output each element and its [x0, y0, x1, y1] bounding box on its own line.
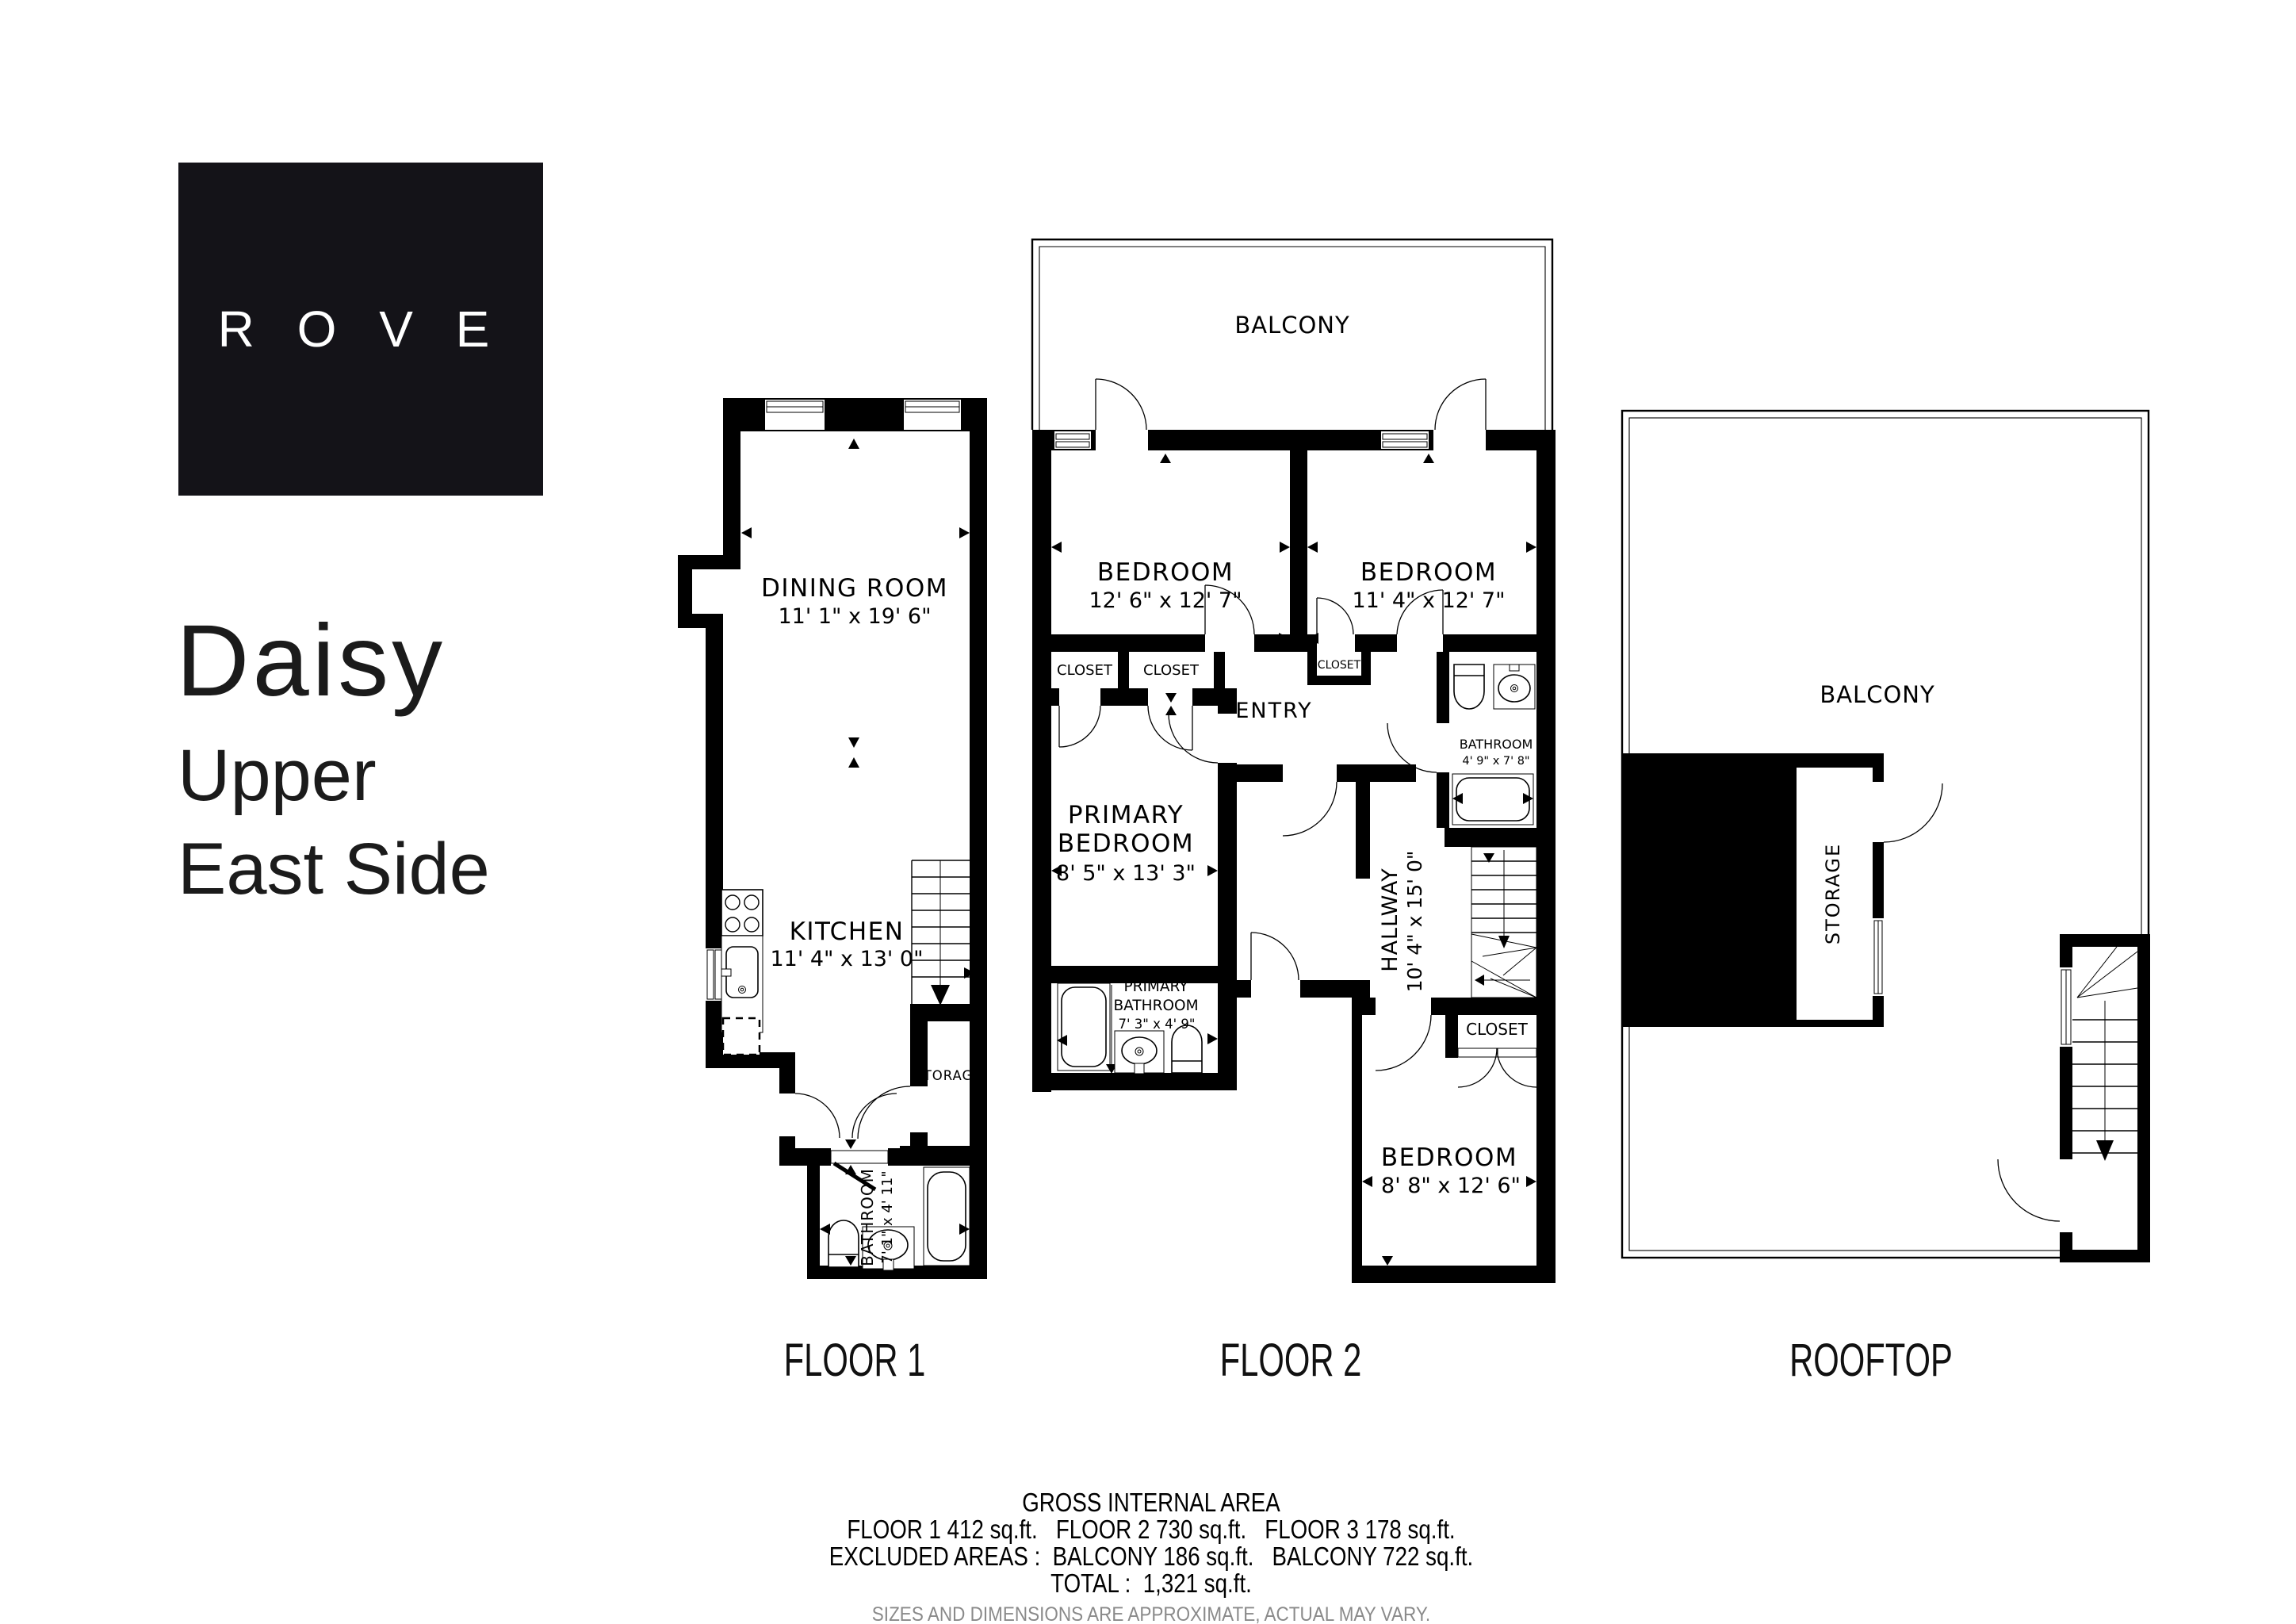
rove-logo: R O V E	[178, 163, 543, 496]
bedroom-bottom-dims: 8' 8" x 12' 6"	[1381, 1174, 1521, 1198]
primary-bathroom-label2: BATHROOM	[1113, 998, 1198, 1014]
bathroom1-dims: 7' 1" x 4' 11"	[879, 1170, 896, 1263]
rooftop-caption: ROOFTOP	[1757, 1334, 1985, 1387]
primary-bedroom-label2: BEDROOM	[1058, 829, 1194, 858]
dining-room-label: DINING ROOM	[761, 574, 948, 603]
primary-bedroom-label1: PRIMARY	[1068, 801, 1184, 829]
entry-label: ENTRY	[1235, 699, 1312, 723]
floorplan-page: R O V E Daisy Upper East Side	[0, 0, 2296, 1624]
storage-label: STORAGE	[914, 1068, 982, 1083]
floor1-caption: FLOOR 1	[740, 1334, 969, 1387]
bedroom-right-label: BEDROOM	[1360, 558, 1497, 587]
primary-bathroom-dims: 7' 3" x 4' 9"	[1119, 1017, 1196, 1032]
floor-areas-line: FLOOR 1 412 sq.ft. FLOOR 2 730 sq.ft. FL…	[618, 1516, 1684, 1543]
listing-location-line1: Upper	[178, 730, 490, 823]
listing-location-line2: East Side	[178, 823, 490, 917]
primary-bedroom-dims: 8' 5" x 13' 3"	[1056, 861, 1196, 886]
closet3-label: CLOSET	[1318, 659, 1361, 672]
primary-bathroom-label1: PRIMARY	[1123, 979, 1188, 995]
kitchen-label: KITCHEN	[790, 917, 905, 946]
listing-title: Daisy	[176, 603, 446, 719]
dishwasher-icon	[723, 1018, 760, 1055]
bathroom2-dims: 4' 9" x 7' 8"	[1462, 755, 1529, 768]
floor2-balcony-label: BALCONY	[1234, 312, 1349, 339]
floor1-plan: DINING ROOM 11' 1" x 19' 6" KITCHEN 11' …	[674, 389, 999, 1324]
rooftop-storage-block	[1622, 753, 1942, 1027]
kitchen-dims: 11' 4" x 13' 0"	[770, 947, 923, 971]
excluded-areas-line: EXCLUDED AREAS : BALCONY 186 sq.ft. BALC…	[618, 1543, 1684, 1570]
dining-room-dims: 11' 1" x 19' 6"	[778, 604, 931, 629]
floor1-walls	[678, 398, 987, 1279]
floor2-plan: BALCONY BEDROOM 12' 6" x 12' 7" BEDROOM …	[1023, 230, 1570, 1324]
bathroom2-label: BATHROOM	[1460, 737, 1533, 752]
bedroom-right-dims: 11' 4" x 12' 7"	[1352, 588, 1505, 613]
floor1-dimension-arrows	[741, 439, 970, 1266]
total-area-line: TOTAL : 1,321 sq.ft.	[618, 1570, 1684, 1597]
closet1-label: CLOSET	[1057, 662, 1113, 679]
disclaimer-text: SIZES AND DIMENSIONS ARE APPROXIMATE, AC…	[580, 1603, 1722, 1624]
bathtub-icon	[924, 1167, 970, 1266]
rooftop-plan: BALCONY STORAGE	[1609, 400, 2156, 1273]
bedroom-left-dims: 12' 6" x 12' 7"	[1089, 588, 1242, 613]
rooftop-storage-label: STORAGE	[1822, 843, 1844, 944]
gross-internal-area-heading: GROSS INTERNAL AREA	[618, 1489, 1684, 1516]
floor2-caption: FLOOR 2	[1177, 1334, 1405, 1387]
bedroom-left-label: BEDROOM	[1097, 558, 1234, 587]
hallway-dims: 10' 4" x 15' 0"	[1403, 851, 1426, 993]
stove-icon	[721, 890, 763, 936]
rove-logo-text: R O V E	[218, 300, 504, 358]
closet4-label: CLOSET	[1466, 1020, 1528, 1039]
floor1-stairs	[912, 860, 975, 1005]
listing-location: Upper East Side	[178, 730, 490, 917]
floor2-stairs	[1471, 847, 1536, 998]
bedroom-bottom-label: BEDROOM	[1381, 1143, 1517, 1172]
rooftop-stair-enclosure	[1998, 934, 2150, 1262]
rooftop-balcony-label: BALCONY	[1820, 681, 1934, 708]
bathroom1-label: BATHROOM	[858, 1168, 877, 1266]
closet2-label: CLOSET	[1143, 662, 1200, 679]
hallway-label: HALLWAY	[1378, 868, 1402, 971]
toilet-icon	[828, 1220, 859, 1267]
area-summary: GROSS INTERNAL AREA FLOOR 1 412 sq.ft. F…	[517, 1489, 1785, 1624]
